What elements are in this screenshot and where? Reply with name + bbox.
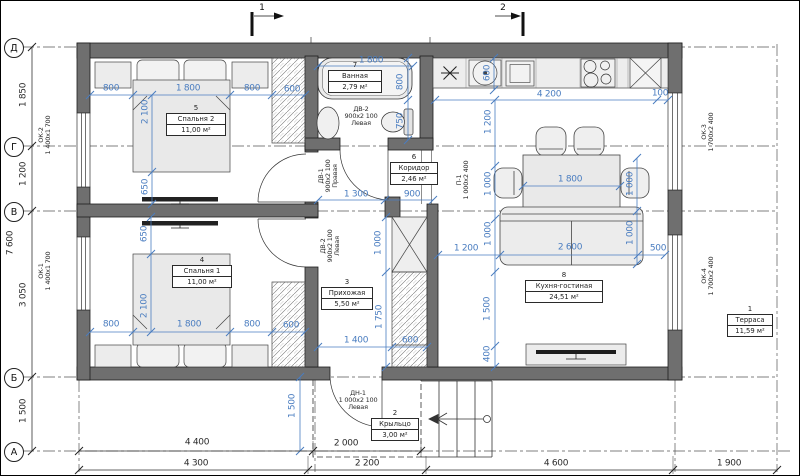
stairs <box>421 381 492 457</box>
dim-label: 400 <box>483 346 492 362</box>
tag-label: ДН-1 1 000х2 100 Левая <box>339 390 378 410</box>
room-number: 4 <box>172 256 232 264</box>
closet-bedroom2 <box>272 58 305 143</box>
nightstand <box>232 345 268 367</box>
stove-icon <box>581 59 615 87</box>
dim-label: 1 200 <box>484 110 493 134</box>
dim-label: 600 <box>483 65 492 81</box>
window-ok4 <box>668 235 682 330</box>
dim-label: 4 200 <box>537 90 561 99</box>
room-label: 5Спальня 211,00 м² <box>166 104 226 136</box>
pillow <box>184 343 226 367</box>
room-name: Крыльцо <box>372 419 418 430</box>
axis-bubble: Г <box>4 137 24 157</box>
fridge-icon <box>630 58 661 88</box>
dim-label: 900 <box>404 190 420 199</box>
room-area: 5,50 м² <box>322 299 372 309</box>
dim-label: 3 050 <box>19 283 28 307</box>
wall-junction-ticks <box>311 37 430 43</box>
room-name: Кухня-гостиная <box>526 281 602 292</box>
room-label-box: Кухня-гостиная24,51 м² <box>525 280 603 303</box>
bath-sink-icon <box>317 107 339 139</box>
dim-label: 1 500 <box>483 297 492 321</box>
tag-label: ОК-4 1 700х2 400 <box>701 257 715 296</box>
dim-label: 800 <box>103 84 119 93</box>
dim-label: 800 <box>244 320 260 329</box>
dim-label: 2 200 <box>355 459 379 468</box>
dim-label: 1 000 <box>626 221 635 245</box>
room-label: 3Прихожая5,50 м² <box>321 278 373 310</box>
tv-console-living <box>526 344 626 365</box>
dim-label: 650 <box>141 179 150 195</box>
tag-label: П-1 1 000х2 400 <box>456 161 470 200</box>
section-mark-2 <box>495 12 523 36</box>
room-number: 1 <box>727 305 773 313</box>
room-label-box: Спальня 211,00 м² <box>166 113 226 136</box>
tag-label: ОК-2 1 400х1 700 <box>38 116 52 155</box>
sofa <box>500 207 643 265</box>
door-bedroom2 <box>258 154 306 202</box>
room-label: 7Ванная2,79 м² <box>328 61 382 93</box>
room-name: Спальня 2 <box>167 114 225 125</box>
room-area: 11,00 м² <box>173 277 231 287</box>
dim-label: 750 <box>396 113 405 129</box>
floor-plan: 8001 8008006002 1006506502 1008001 80080… <box>0 0 800 476</box>
dim-label: 1 800 <box>176 84 200 93</box>
room-area: 11,00 м² <box>167 125 225 135</box>
dim-label: 1 900 <box>717 459 741 468</box>
room-name: Прихожая <box>322 288 372 299</box>
dim-label: 1 000 <box>626 172 635 196</box>
dim-label: 4 400 <box>185 438 209 447</box>
room-number: 3 <box>321 278 373 286</box>
room-label-box: Спальня 111,00 м² <box>172 265 232 288</box>
room-name: Терраса <box>728 315 772 326</box>
room-label-box: Прихожая5,50 м² <box>321 287 373 310</box>
tag-label: ОК-1 1 400х1 700 <box>38 252 52 291</box>
room-label-box: Коридор2,46 м² <box>390 162 438 185</box>
dim-label: 600 <box>284 85 300 94</box>
section-mark-1 <box>252 12 284 36</box>
room-label: 2Крыльцо3,00 м² <box>371 409 419 441</box>
dim-label: 1 750 <box>375 305 384 329</box>
room-number: 2 <box>371 409 419 417</box>
room-name: Спальня 1 <box>173 266 231 277</box>
room-number: 6 <box>390 153 438 161</box>
dim-label: 2 600 <box>558 243 582 252</box>
room-number: 7 <box>328 61 382 69</box>
room-label-box: Ванная2,79 м² <box>328 70 382 93</box>
dim-label: 600 <box>402 336 418 345</box>
room-label: 1Терраса11,59 м² <box>727 305 773 337</box>
tag-label: ДВ-2 900х2 100 Левая <box>320 229 340 262</box>
door-bedroom1 <box>258 219 306 267</box>
dim-label: 1 200 <box>19 162 28 186</box>
axis-bubble: Д <box>4 38 24 58</box>
room-label-box: Крыльцо3,00 м² <box>371 418 419 441</box>
dim-label: 1 800 <box>177 320 201 329</box>
dim-label: 2 000 <box>334 439 358 448</box>
room-number: 8 <box>525 271 603 279</box>
axis-bubble: В <box>4 202 24 222</box>
dim-label: 1 000 <box>484 222 493 246</box>
dim-label: 1 850 <box>19 83 28 107</box>
dim-label: 1 800 <box>558 175 582 184</box>
axis-bubble: Б <box>4 368 24 388</box>
room-label: 6Коридор2,46 м² <box>390 153 438 185</box>
room-area: 24,51 м² <box>526 292 602 302</box>
dim-label: 2 100 <box>141 100 150 124</box>
dim-label: 800 <box>103 320 119 329</box>
room-label: 8Кухня-гостиная24,51 м² <box>525 271 603 303</box>
dim-label: 1 500 <box>288 394 297 418</box>
dim-label: 4 600 <box>544 459 568 468</box>
section-marks <box>252 12 523 36</box>
dim-label: 800 <box>396 74 405 90</box>
dim-label: 2 100 <box>140 294 149 318</box>
dim-label: 1 500 <box>19 399 28 423</box>
room-name: Ванная <box>329 71 381 82</box>
dim-label: 4 300 <box>184 459 208 468</box>
window-ok2 <box>77 113 90 187</box>
stairs-direction-arrow <box>429 415 438 424</box>
room-area: 2,46 м² <box>391 174 437 184</box>
dim-label: 650 <box>140 226 149 242</box>
room-area: 11,59 м² <box>728 326 772 336</box>
tag-label: ДВ-1 900х2 100 Правая <box>318 159 338 192</box>
dim-label: 100 <box>652 89 668 98</box>
dim-label: 7 600 <box>6 231 15 255</box>
room-number: 5 <box>166 104 226 112</box>
dim-label: 1 200 <box>454 244 478 253</box>
dim-label: 500 <box>650 244 666 253</box>
dim-label: 1 000 <box>374 231 383 255</box>
dim-label: 800 <box>244 84 260 93</box>
window-ok1 <box>77 237 90 310</box>
plan-linework <box>0 0 800 476</box>
dim-label: 1 000 <box>484 172 493 196</box>
section-number: 2 <box>500 3 506 13</box>
oven-icon <box>506 61 534 86</box>
room-area: 3,00 м² <box>372 430 418 440</box>
dim-label: 1 400 <box>344 336 368 345</box>
room-name: Коридор <box>391 163 437 174</box>
room-area: 2,79 м² <box>329 82 381 92</box>
dim-label: 1 300 <box>344 190 368 199</box>
tag-label: ДВ-2 900х2 100 Левая <box>344 106 377 126</box>
section-number: 1 <box>259 3 265 13</box>
room-label: 4Спальня 111,00 м² <box>172 256 232 288</box>
axis-bubble: А <box>4 442 24 462</box>
window-ok3 <box>668 93 682 190</box>
pillow <box>137 343 179 367</box>
room-label-box: Терраса11,59 м² <box>727 314 773 337</box>
dim-label: 600 <box>283 321 299 330</box>
tag-label: ОК-3 1 700х2 400 <box>701 113 715 152</box>
tv-console-bedroom1 <box>142 221 218 228</box>
nightstand <box>95 345 131 367</box>
